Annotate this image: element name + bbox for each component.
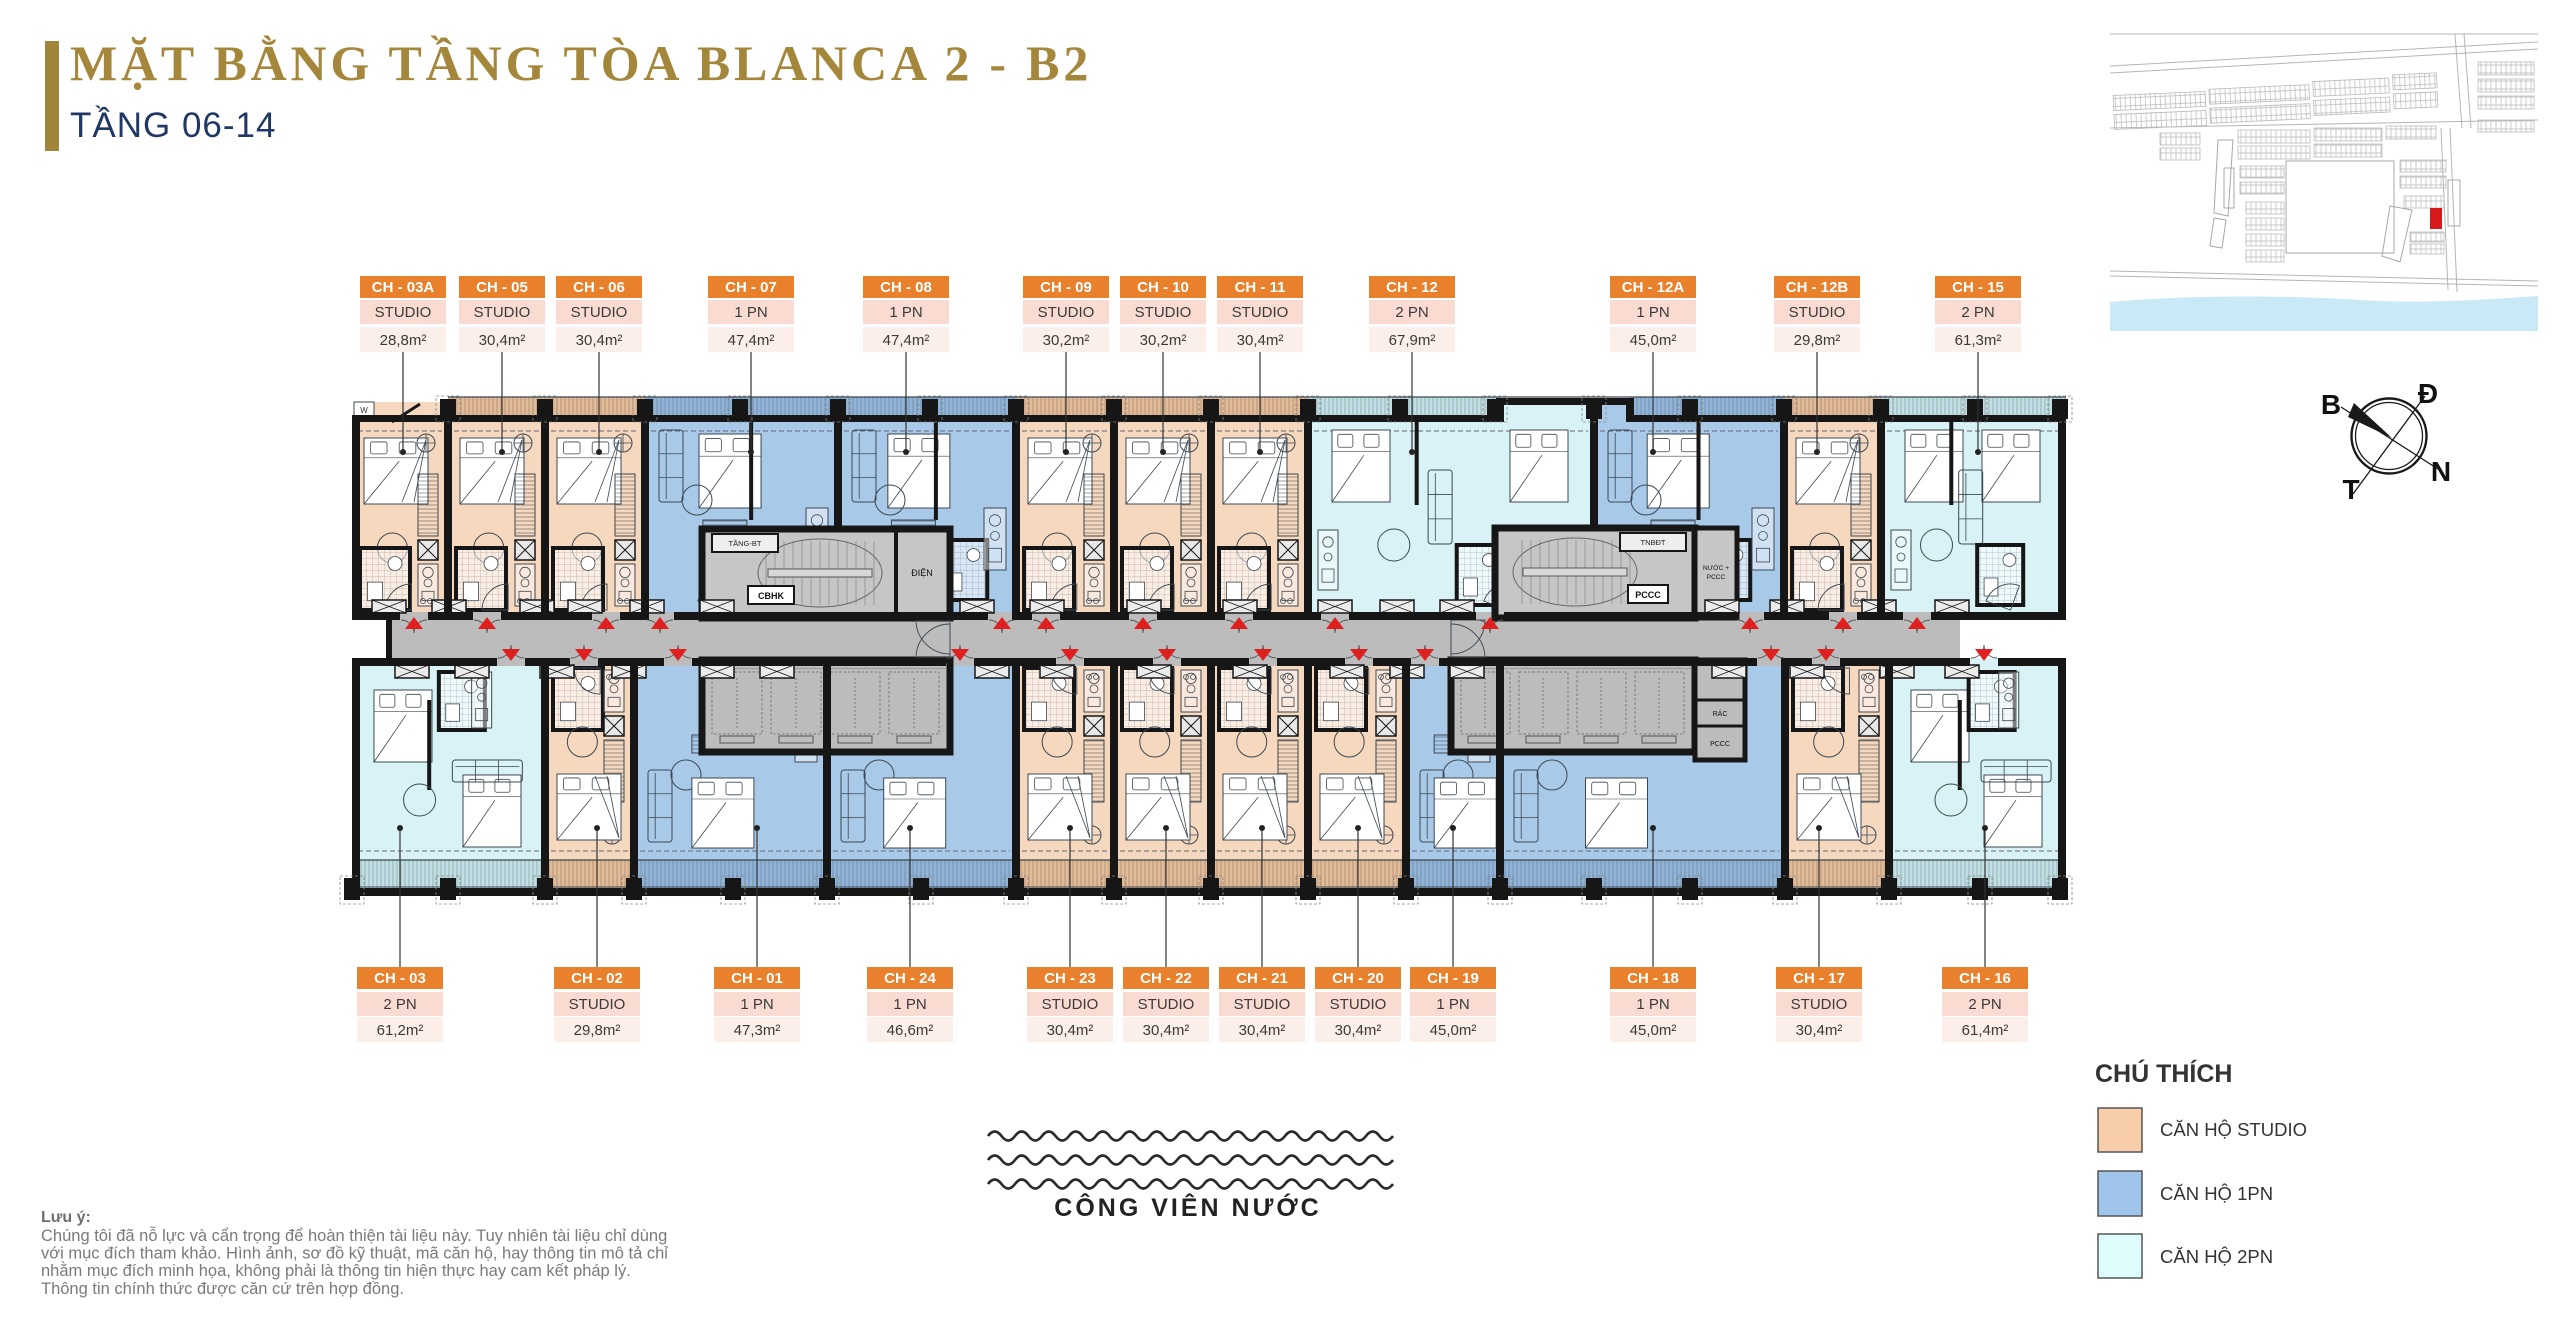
- svg-text:45,0m²: 45,0m²: [1430, 1022, 1477, 1039]
- svg-text:PCCC: PCCC: [1707, 574, 1726, 581]
- svg-text:2 PN: 2 PN: [383, 996, 416, 1013]
- svg-text:CH - 17: CH - 17: [1793, 970, 1845, 987]
- svg-text:PCCC: PCCC: [1635, 590, 1661, 600]
- svg-text:CH - 02: CH - 02: [571, 970, 623, 987]
- svg-text:CBHK: CBHK: [758, 591, 784, 601]
- svg-text:STUDIO: STUDIO: [474, 304, 531, 321]
- svg-text:CH - 21: CH - 21: [1236, 970, 1288, 987]
- svg-text:CH - 09: CH - 09: [1040, 279, 1092, 296]
- svg-text:47,4m²: 47,4m²: [883, 332, 930, 349]
- svg-text:1 PN: 1 PN: [1636, 996, 1669, 1013]
- svg-text:STUDIO: STUDIO: [1789, 304, 1846, 321]
- svg-text:1 PN: 1 PN: [734, 304, 767, 321]
- svg-text:CH - 05: CH - 05: [476, 279, 528, 296]
- svg-text:RÁC: RÁC: [1713, 709, 1728, 718]
- svg-text:CH - 24: CH - 24: [884, 970, 936, 987]
- svg-text:30,4m²: 30,4m²: [576, 332, 623, 349]
- svg-text:61,4m²: 61,4m²: [1962, 1022, 2009, 1039]
- svg-text:CH - 22: CH - 22: [1140, 970, 1192, 987]
- svg-text:STUDIO: STUDIO: [571, 304, 628, 321]
- svg-text:CH - 08: CH - 08: [880, 279, 932, 296]
- svg-text:30,4m²: 30,4m²: [1047, 1022, 1094, 1039]
- svg-text:STUDIO: STUDIO: [1042, 996, 1099, 1013]
- svg-text:STUDIO: STUDIO: [375, 304, 432, 321]
- svg-text:30,2m²: 30,2m²: [1043, 332, 1090, 349]
- svg-text:CH - 03: CH - 03: [374, 970, 426, 987]
- svg-text:47,4m²: 47,4m²: [728, 332, 775, 349]
- svg-text:30,2m²: 30,2m²: [1140, 332, 1187, 349]
- svg-text:2 PN: 2 PN: [1968, 996, 2001, 1013]
- svg-text:30,4m²: 30,4m²: [1143, 1022, 1190, 1039]
- svg-text:CH - 03A: CH - 03A: [372, 279, 435, 296]
- svg-text:1 PN: 1 PN: [1636, 304, 1669, 321]
- svg-text:1 PN: 1 PN: [740, 996, 773, 1013]
- svg-text:W: W: [360, 406, 368, 415]
- svg-text:CHÚ THÍCH: CHÚ THÍCH: [2095, 1058, 2233, 1088]
- svg-text:30,4m²: 30,4m²: [1239, 1022, 1286, 1039]
- svg-text:CH - 12B: CH - 12B: [1786, 279, 1849, 296]
- svg-text:CH - 12A: CH - 12A: [1622, 279, 1685, 296]
- svg-text:CH - 19: CH - 19: [1427, 970, 1479, 987]
- svg-text:29,8m²: 29,8m²: [574, 1022, 621, 1039]
- svg-text:nhằm mục đích minh họa, không: nhằm mục đích minh họa, không phải là th…: [41, 1261, 631, 1280]
- svg-text:N: N: [2431, 456, 2451, 487]
- svg-text:ĐIỆN: ĐIỆN: [911, 568, 933, 578]
- svg-text:PCCC: PCCC: [1710, 741, 1730, 748]
- svg-text:với mục đích tham khảo. Hình ả: với mục đích tham khảo. Hình ảnh, sơ đồ …: [41, 1245, 668, 1263]
- svg-text:STUDIO: STUDIO: [1234, 996, 1291, 1013]
- svg-text:MẶT BẰNG TẦNG TÒA BLANCA 2 - B: MẶT BẰNG TẦNG TÒA BLANCA 2 - B2: [70, 34, 1092, 91]
- svg-text:1 PN: 1 PN: [889, 304, 922, 321]
- svg-text:CĂN HỘ STUDIO: CĂN HỘ STUDIO: [2160, 1119, 2307, 1140]
- svg-text:STUDIO: STUDIO: [569, 996, 626, 1013]
- svg-text:61,2m²: 61,2m²: [377, 1022, 424, 1039]
- svg-text:Thông tin chính thức được căn: Thông tin chính thức được căn cứ trên hợ…: [41, 1280, 404, 1298]
- svg-text:1 PN: 1 PN: [893, 996, 926, 1013]
- svg-text:STUDIO: STUDIO: [1038, 304, 1095, 321]
- svg-text:30,4m²: 30,4m²: [479, 332, 526, 349]
- svg-text:45,0m²: 45,0m²: [1630, 1022, 1677, 1039]
- svg-text:29,8m²: 29,8m²: [1794, 332, 1841, 349]
- svg-text:28,8m²: 28,8m²: [380, 332, 427, 349]
- svg-text:67,9m²: 67,9m²: [1389, 332, 1436, 349]
- svg-text:TẦNG 06-14: TẦNG 06-14: [70, 105, 276, 145]
- svg-text:CH - 10: CH - 10: [1137, 279, 1189, 296]
- svg-text:NƯỚC +: NƯỚC +: [1703, 563, 1729, 572]
- svg-text:CH - 11: CH - 11: [1235, 279, 1286, 296]
- svg-text:CH - 18: CH - 18: [1627, 970, 1679, 987]
- svg-text:CH - 20: CH - 20: [1332, 970, 1384, 987]
- svg-text:Lưu ý:: Lưu ý:: [41, 1209, 91, 1226]
- svg-text:STUDIO: STUDIO: [1791, 996, 1848, 1013]
- svg-text:STUDIO: STUDIO: [1232, 304, 1289, 321]
- svg-text:CH - 07: CH - 07: [725, 279, 777, 296]
- svg-text:STUDIO: STUDIO: [1330, 996, 1387, 1013]
- svg-text:CH - 23: CH - 23: [1044, 970, 1096, 987]
- svg-text:2 PN: 2 PN: [1961, 304, 1994, 321]
- svg-text:STUDIO: STUDIO: [1138, 996, 1195, 1013]
- svg-text:CH - 15: CH - 15: [1952, 279, 2004, 296]
- svg-text:CÔNG VIÊN NƯỚC: CÔNG VIÊN NƯỚC: [1054, 1192, 1321, 1222]
- svg-text:45,0m²: 45,0m²: [1630, 332, 1677, 349]
- svg-text:CH - 01: CH - 01: [731, 970, 783, 987]
- svg-text:2 PN: 2 PN: [1395, 304, 1428, 321]
- svg-text:TNBĐT: TNBĐT: [1641, 538, 1666, 547]
- svg-text:47,3m²: 47,3m²: [734, 1022, 781, 1039]
- svg-text:30,4m²: 30,4m²: [1796, 1022, 1843, 1039]
- svg-text:Đ: Đ: [2418, 378, 2438, 409]
- svg-text:CH - 06: CH - 06: [573, 279, 625, 296]
- svg-text:CH - 16: CH - 16: [1959, 970, 2011, 987]
- svg-text:B: B: [2321, 389, 2341, 420]
- svg-text:Chúng tôi đã nỗ lực và cẩn trọ: Chúng tôi đã nỗ lực và cẩn trọng để hoàn…: [41, 1226, 667, 1245]
- svg-text:61,3m²: 61,3m²: [1955, 332, 2002, 349]
- svg-text:STUDIO: STUDIO: [1135, 304, 1192, 321]
- svg-text:CH - 12: CH - 12: [1386, 279, 1438, 296]
- svg-text:30,4m²: 30,4m²: [1335, 1022, 1382, 1039]
- svg-text:30,4m²: 30,4m²: [1237, 332, 1284, 349]
- svg-text:CĂN HỘ 1PN: CĂN HỘ 1PN: [2160, 1183, 2273, 1204]
- svg-text:T: T: [2342, 474, 2359, 505]
- svg-text:CĂN HỘ 2PN: CĂN HỘ 2PN: [2160, 1246, 2273, 1267]
- svg-text:46,6m²: 46,6m²: [887, 1022, 934, 1039]
- svg-text:TẦNG-BT: TẦNG-BT: [729, 538, 762, 548]
- svg-text:1 PN: 1 PN: [1436, 996, 1469, 1013]
